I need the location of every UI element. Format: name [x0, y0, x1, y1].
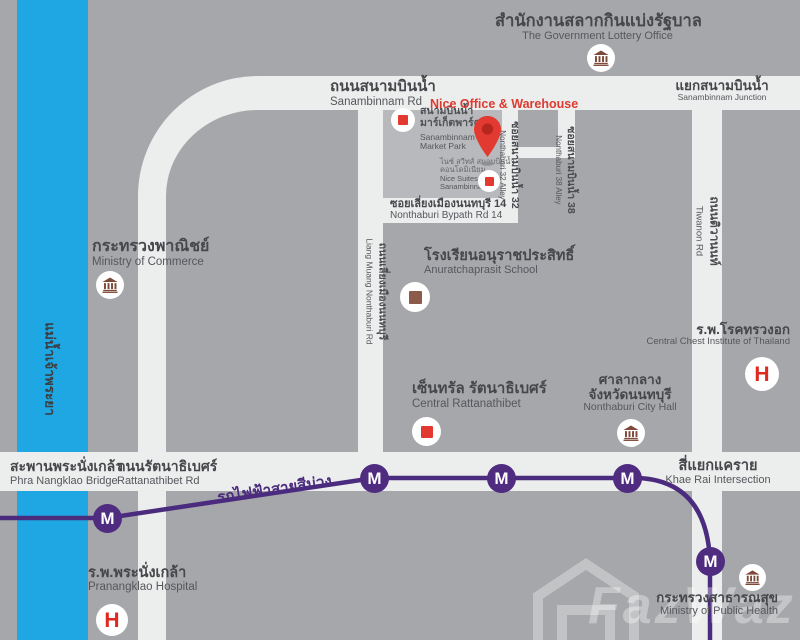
tiwanon-en: Tiwanon Rd [694, 184, 705, 279]
health-bank-icon [739, 564, 766, 591]
poi-commerce-label: กระทรวงพาณิชย์ Ministry of Commerce [92, 238, 209, 269]
nice-suites-en2: Sanambinnam [440, 183, 515, 191]
commerce-bank-icon [96, 271, 124, 299]
metro-station-marker: M [360, 464, 389, 493]
lottery-en: The Government Lottery Office [495, 30, 700, 42]
poi-central-label: เซ็นทรัล รัตนาธิเบศร์ Central Rattanathi… [412, 381, 547, 411]
chest-hospital-icon: H [745, 357, 779, 391]
soi-38-en: Nonthaburi 38 Alley [554, 115, 563, 225]
commerce-th: กระทรวงพาณิชย์ [92, 238, 209, 256]
red-square-icon [398, 115, 408, 125]
hospital-h-icon: H [754, 364, 769, 385]
central-marker [412, 417, 441, 446]
bank-icon [622, 424, 640, 442]
soi-38-th: ซอยสนามบินน้ำ 38 [563, 115, 580, 225]
khae-rai-th: สี่แยกแคราย [648, 458, 788, 474]
poi-city-hall-label: ศาลากลาง จังหวัดนนทบุรี Nonthaburi City … [568, 372, 692, 414]
tiwanon-th: ถนนติวานนท์ [705, 184, 724, 279]
brown-square-icon [409, 291, 422, 304]
bank-icon [744, 569, 761, 586]
bypath-en: Nonthaburi Bypath Rd 14 [390, 210, 506, 221]
health-en: Ministry of Public Health [643, 605, 778, 617]
khae-rai-en: Khae Rai Intersection [648, 474, 788, 486]
lottery-bank-icon [587, 44, 615, 72]
lottery-th: สำนักงานสลากกินแบ่งรัฐบาล [495, 12, 700, 30]
city-hall-en: Nonthaburi City Hall [568, 402, 692, 414]
city-hall-th1: ศาลากลาง [568, 372, 692, 387]
label-tiwanon: ถนนติวานนท์ Tiwanon Rd [694, 184, 724, 279]
city-hall-bank-icon [617, 419, 645, 447]
bank-icon [101, 276, 119, 294]
sanambinnam-rd-th: ถนนสนามบินน้ำ [330, 79, 436, 96]
nice-suites-marker [478, 170, 500, 192]
label-khae-rai: สี่แยกแคราย Khae Rai Intersection [648, 458, 788, 487]
central-en: Central Rattanathibet [412, 398, 547, 411]
metro-station-marker: M [696, 547, 725, 576]
pranangklao-th: ร.พ.พระนั่งเกล้า [88, 565, 197, 581]
red-square-icon [421, 426, 433, 438]
poi-lottery-label: สำนักงานสลากกินแบ่งรัฐบาล The Government… [495, 12, 700, 43]
label-soi-38: ซอยสนามบินน้ำ 38 Nonthaburi 38 Alley [554, 115, 580, 225]
junction-en: Sanambinnam Junction [662, 93, 782, 103]
metro-station-marker: M [93, 504, 122, 533]
bank-icon [592, 49, 610, 67]
location-pin-icon [471, 115, 504, 167]
label-phra-nangklao-bridge: สะพานพระนั่งเกล้า Phra Nangklao Bridge [10, 459, 123, 487]
poi-health-label: กระทรวงสาธารณสุข Ministry of Public Heal… [643, 590, 778, 617]
school-en: Anuratchaprasit School [424, 264, 574, 276]
liang-muang-en: Liang Muang Nonthaburi Rd [365, 227, 375, 357]
school-marker [400, 282, 430, 312]
metro-station-marker: M [487, 464, 516, 493]
label-bypath: ซอยเลี่ยงเมืองนนทบุรี 14 Nonthaburi Bypa… [390, 198, 506, 222]
red-square-icon [485, 177, 494, 186]
rattanathibet-en: Rattanathibet Rd [117, 475, 217, 487]
poi-pranangklao-label: ร.พ.พระนั่งเกล้า Pranangklao Hospital [88, 565, 197, 594]
nice-office-title: Nice Office & Warehouse [430, 97, 578, 111]
bridge-en: Phra Nangklao Bridge [10, 475, 123, 487]
city-hall-th2: จังหวัดนนทบุรี [568, 387, 692, 402]
liang-muang-th: ถนนเลี่ยงเมืองนนทบุรี [375, 227, 392, 357]
river-label-th: แม่น้ำเจ้าพระยา [40, 322, 62, 417]
commerce-en: Ministry of Commerce [92, 256, 209, 269]
rattanathibet-th: ถนนรัตนาธิเบศร์ [117, 459, 217, 475]
chest-en: Central Chest Institute of Thailand [640, 337, 790, 348]
pranangklao-hospital-icon: H [96, 604, 128, 636]
label-liang-muang: ถนนเลี่ยงเมืองนนทบุรี Liang Muang Nontha… [365, 227, 392, 357]
label-rattanathibet-rd: ถนนรัตนาธิเบศร์ Rattanathibet Rd [117, 459, 217, 487]
health-th: กระทรวงสาธารณสุข [643, 590, 778, 605]
label-sanambinnam-junction: แยกสนามบินน้ำ Sanambinnam Junction [662, 78, 782, 103]
junction-th: แยกสนามบินน้ำ [662, 78, 782, 93]
bypath-th: ซอยเลี่ยงเมืองนนทบุรี 14 [390, 198, 506, 210]
metro-station-marker: M [613, 464, 642, 493]
river-label: แม่น้ำเจ้าพระยา [40, 322, 62, 417]
school-th: โรงเรียนอนุราชประสิทธิ์ [424, 248, 574, 264]
chest-th: ร.พ.โรคทรวงอก [640, 322, 790, 337]
poi-chest-label: ร.พ.โรคทรวงอก Central Chest Institute of… [640, 322, 790, 348]
map-canvas: แม่น้ำเจ้าพระยา FazWaz ถนนสนามบินน้ำ San… [0, 0, 800, 640]
central-th: เซ็นทรัล รัตนาธิเบศร์ [412, 381, 547, 398]
pranangklao-en: Pranangklao Hospital [88, 581, 197, 594]
poi-school-label: โรงเรียนอนุราชประสิทธิ์ Anuratchaprasit … [424, 248, 574, 277]
bridge-th: สะพานพระนั่งเกล้า [10, 459, 123, 475]
hospital-h-icon: H [104, 610, 119, 631]
market-park-marker [391, 108, 415, 132]
